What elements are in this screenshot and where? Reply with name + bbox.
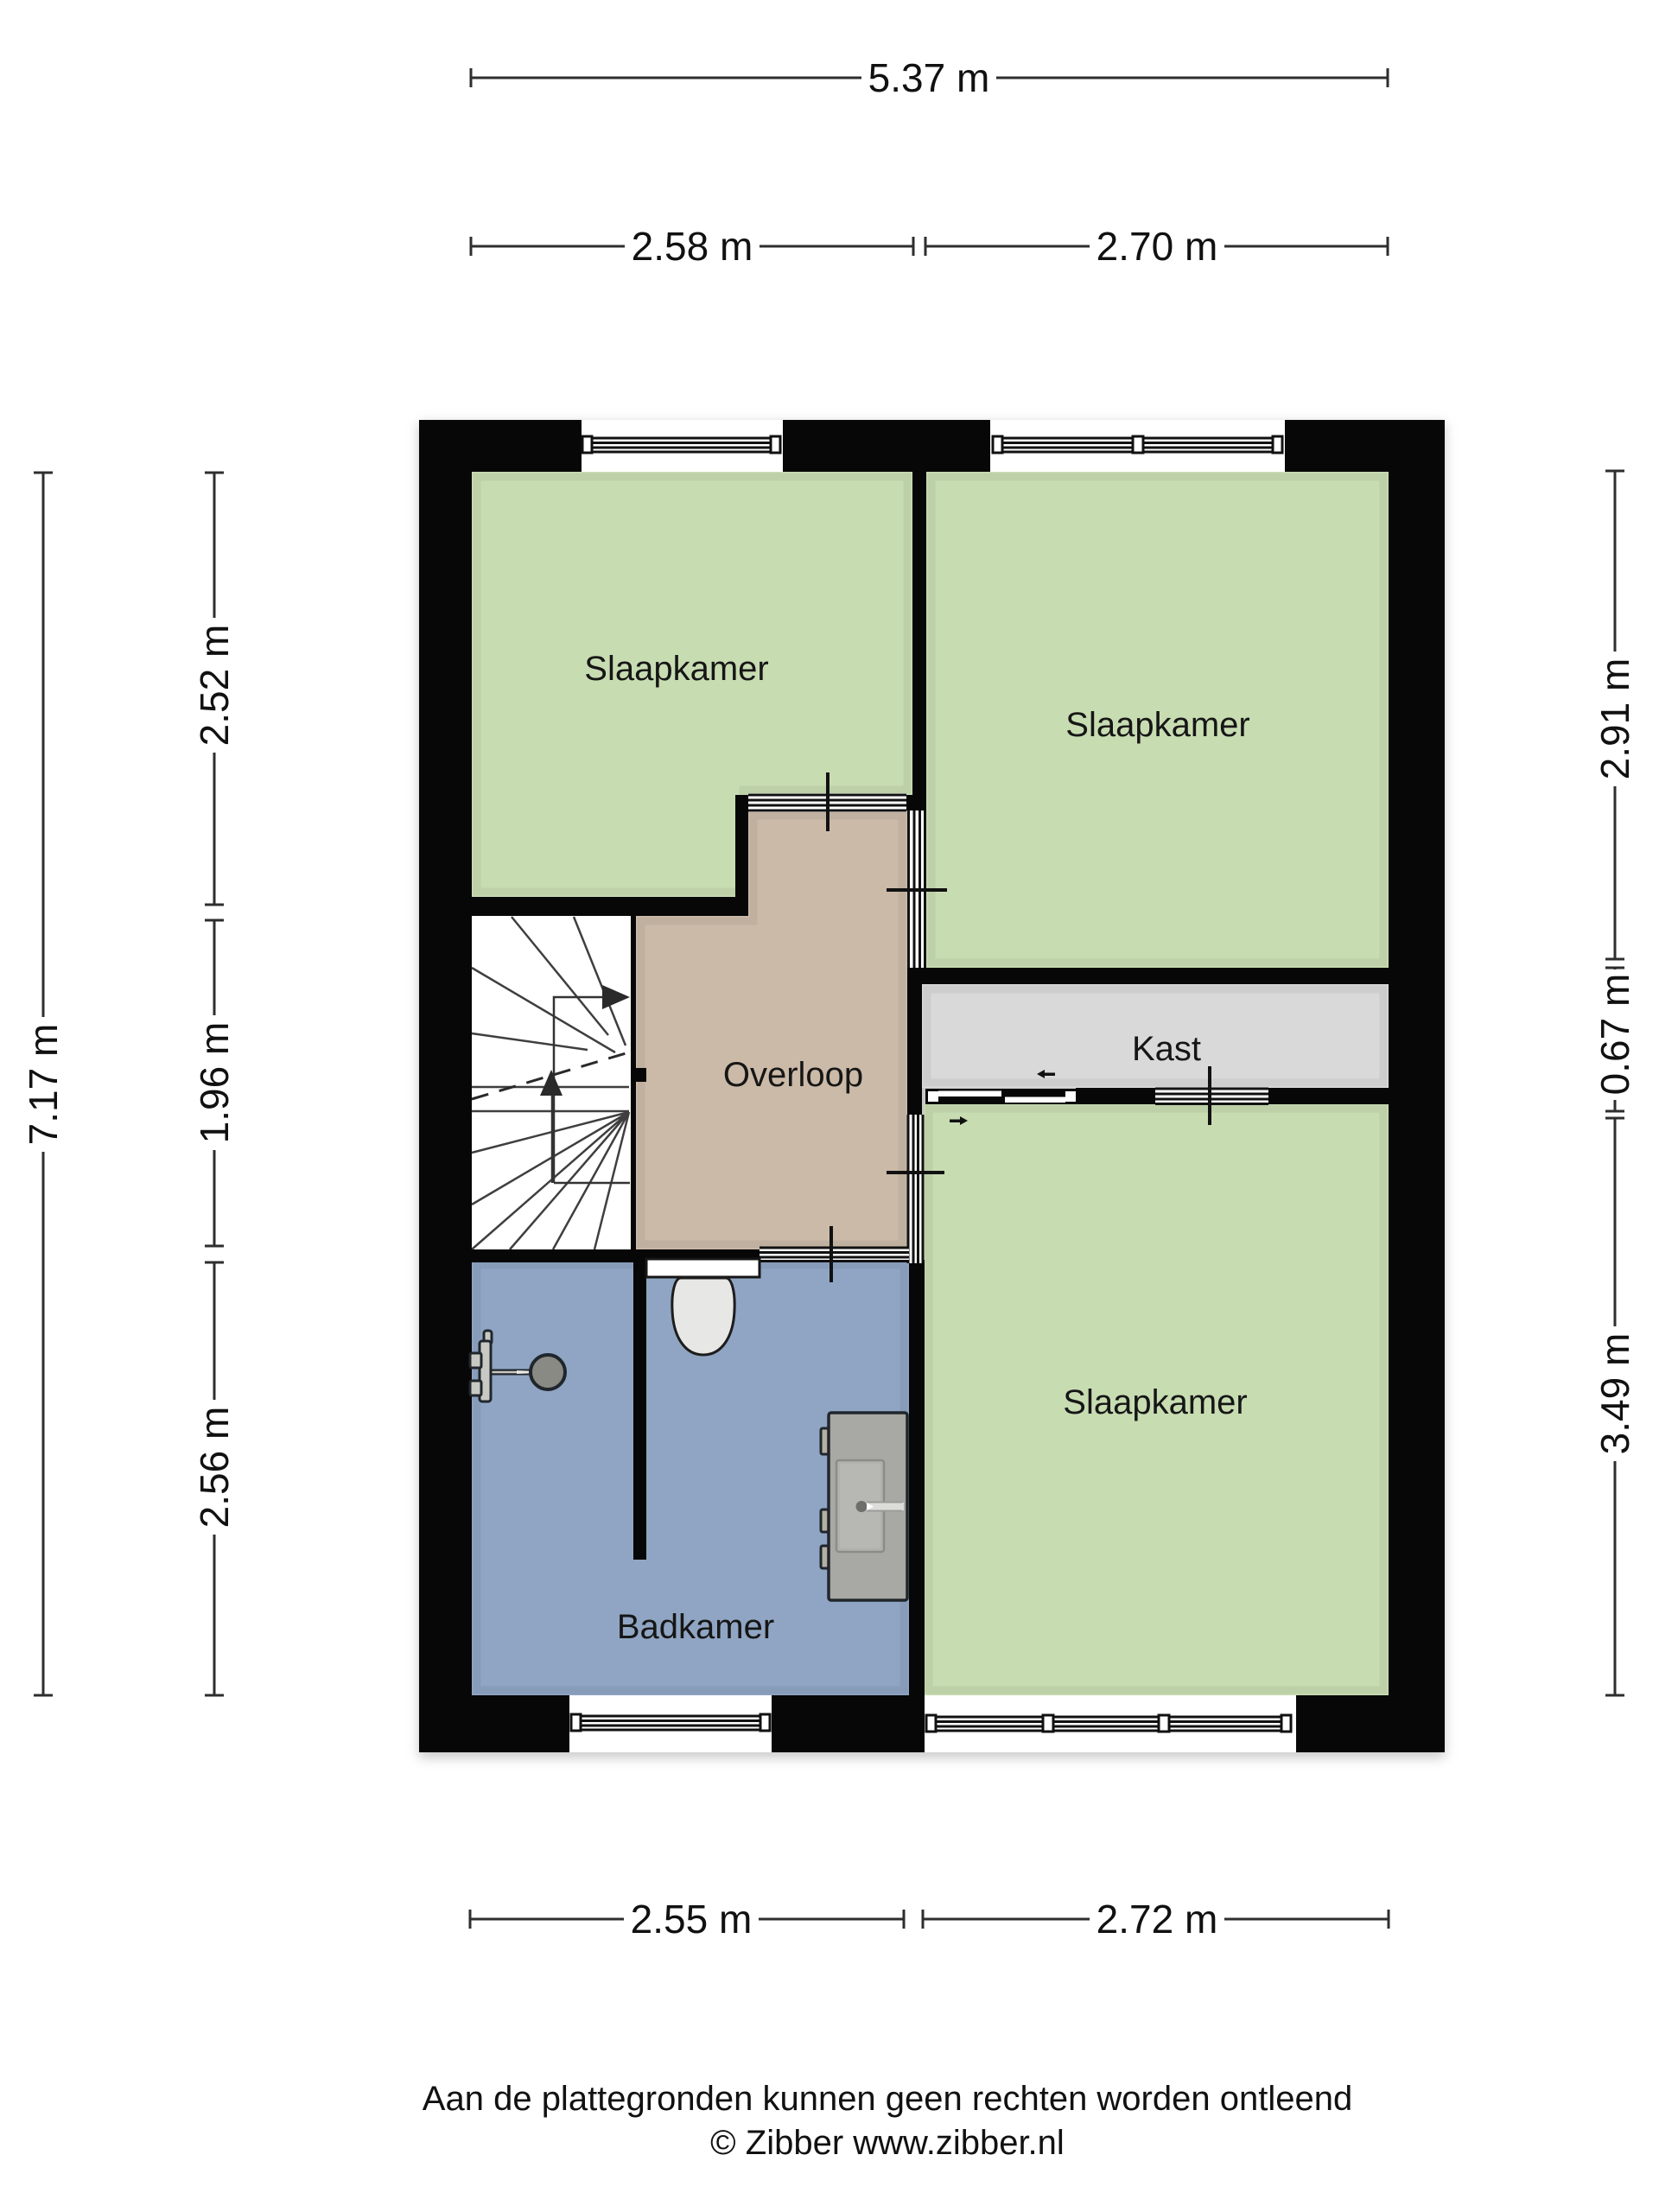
svg-text:3.49 m: 3.49 m: [1592, 1333, 1637, 1455]
svg-text:2.72 m: 2.72 m: [1096, 1897, 1218, 1942]
svg-text:5.37 m: 5.37 m: [868, 55, 990, 100]
svg-text:Aan de plattegronden kunnen ge: Aan de plattegronden kunnen geen rechten…: [423, 2080, 1352, 2118]
svg-text:Slaapkamer: Slaapkamer: [584, 650, 768, 688]
svg-text:2.58 m: 2.58 m: [632, 224, 753, 269]
svg-text:Slaapkamer: Slaapkamer: [1065, 706, 1249, 744]
svg-text:0.67 m: 0.67 m: [1592, 974, 1637, 1096]
svg-text:2.56 m: 2.56 m: [192, 1407, 237, 1529]
svg-text:1.96 m: 1.96 m: [192, 1022, 237, 1144]
svg-text:2.55 m: 2.55 m: [631, 1897, 753, 1942]
svg-text:Badkamer: Badkamer: [617, 1608, 774, 1646]
svg-text:Overloop: Overloop: [723, 1056, 863, 1094]
svg-text:7.17 m: 7.17 m: [21, 1024, 66, 1146]
svg-text:2.70 m: 2.70 m: [1096, 224, 1218, 269]
svg-text:Kast: Kast: [1132, 1030, 1201, 1068]
svg-text:2.91 m: 2.91 m: [1592, 658, 1637, 780]
svg-text:Slaapkamer: Slaapkamer: [1063, 1383, 1247, 1421]
svg-text:2.52 m: 2.52 m: [192, 625, 237, 747]
svg-text:© Zibber www.zibber.nl: © Zibber www.zibber.nl: [710, 2124, 1065, 2162]
